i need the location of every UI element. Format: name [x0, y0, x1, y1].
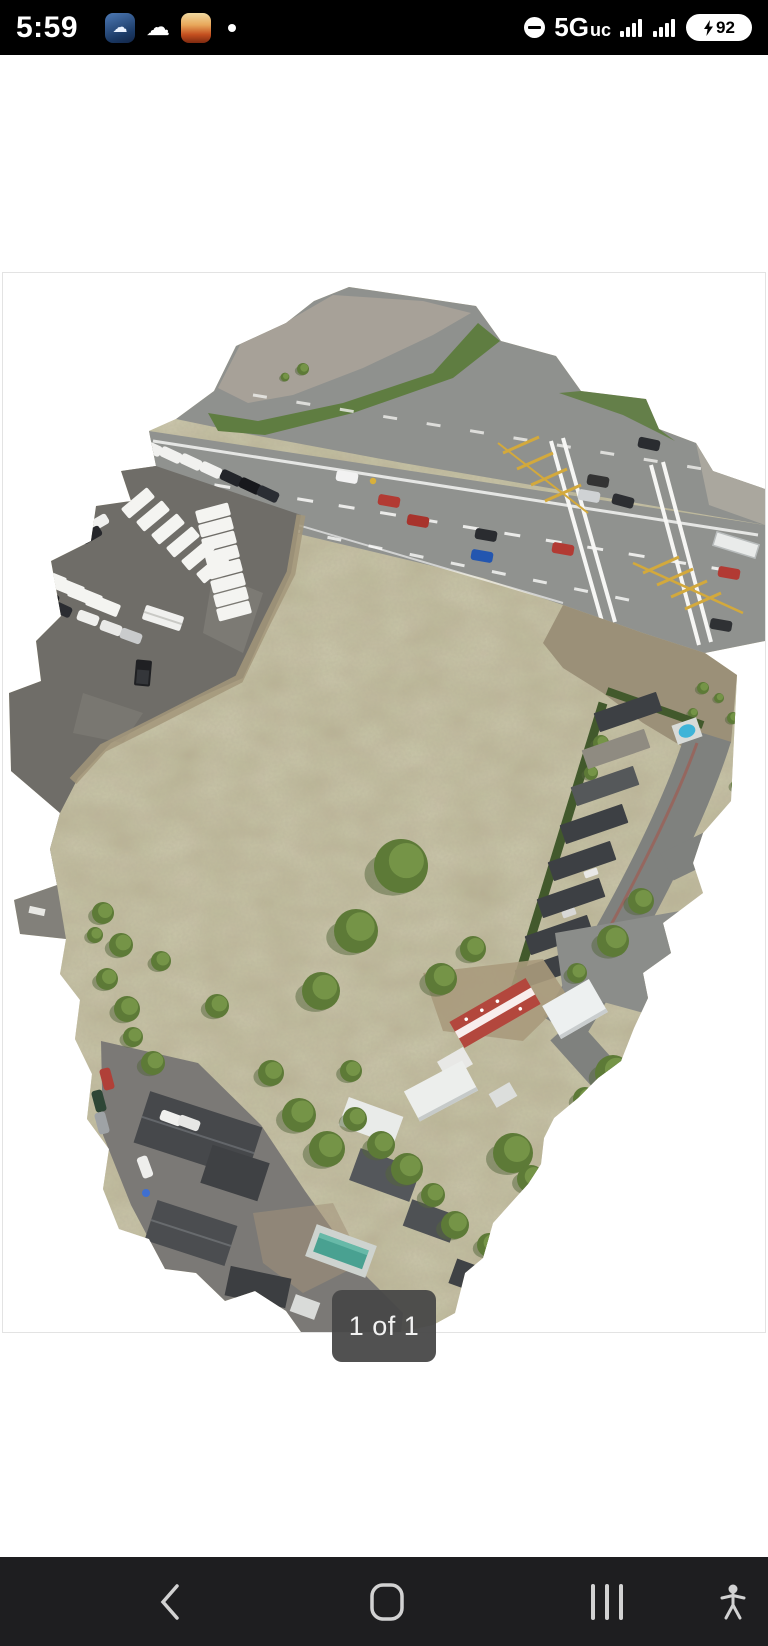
battery-percent: 92 — [716, 18, 735, 38]
status-bar-left: 5:59 ☁ ☁ — [16, 11, 236, 45]
accessibility-person-icon — [718, 1583, 748, 1621]
do-not-disturb-icon — [524, 17, 545, 38]
home-icon — [368, 1582, 406, 1622]
pager-badge: 1 of 1 — [332, 1290, 436, 1362]
photo-viewer — [2, 272, 766, 1333]
gallery-app-icon — [181, 13, 211, 43]
navigation-bar — [0, 1557, 768, 1646]
status-bar: 5:59 ☁ ☁ 5G uc 92 — [0, 0, 768, 55]
cellular-signal-icon — [620, 18, 644, 38]
back-chevron-icon — [157, 1582, 183, 1622]
aerial-photo[interactable] — [3, 273, 765, 1332]
clock: 5:59 — [16, 11, 78, 45]
pager-label: 1 of 1 — [349, 1311, 420, 1342]
recents-button[interactable] — [591, 1584, 623, 1620]
status-bar-right: 5G uc 92 — [524, 12, 752, 43]
back-button[interactable] — [157, 1582, 183, 1622]
weather-app-icon: ☁ — [105, 13, 135, 43]
battery-charging-icon: 92 — [686, 14, 752, 41]
secondary-signal-icon — [653, 18, 677, 38]
accessibility-button[interactable] — [718, 1583, 748, 1621]
network-label: 5G — [554, 12, 589, 43]
notification-overflow-dot — [228, 24, 236, 32]
network-suffix-label: uc — [590, 20, 611, 41]
home-button[interactable] — [368, 1582, 406, 1622]
network-indicator: 5G uc — [554, 12, 611, 43]
cloud-app-icon: ☁ — [146, 16, 170, 40]
recents-icon — [591, 1584, 623, 1620]
